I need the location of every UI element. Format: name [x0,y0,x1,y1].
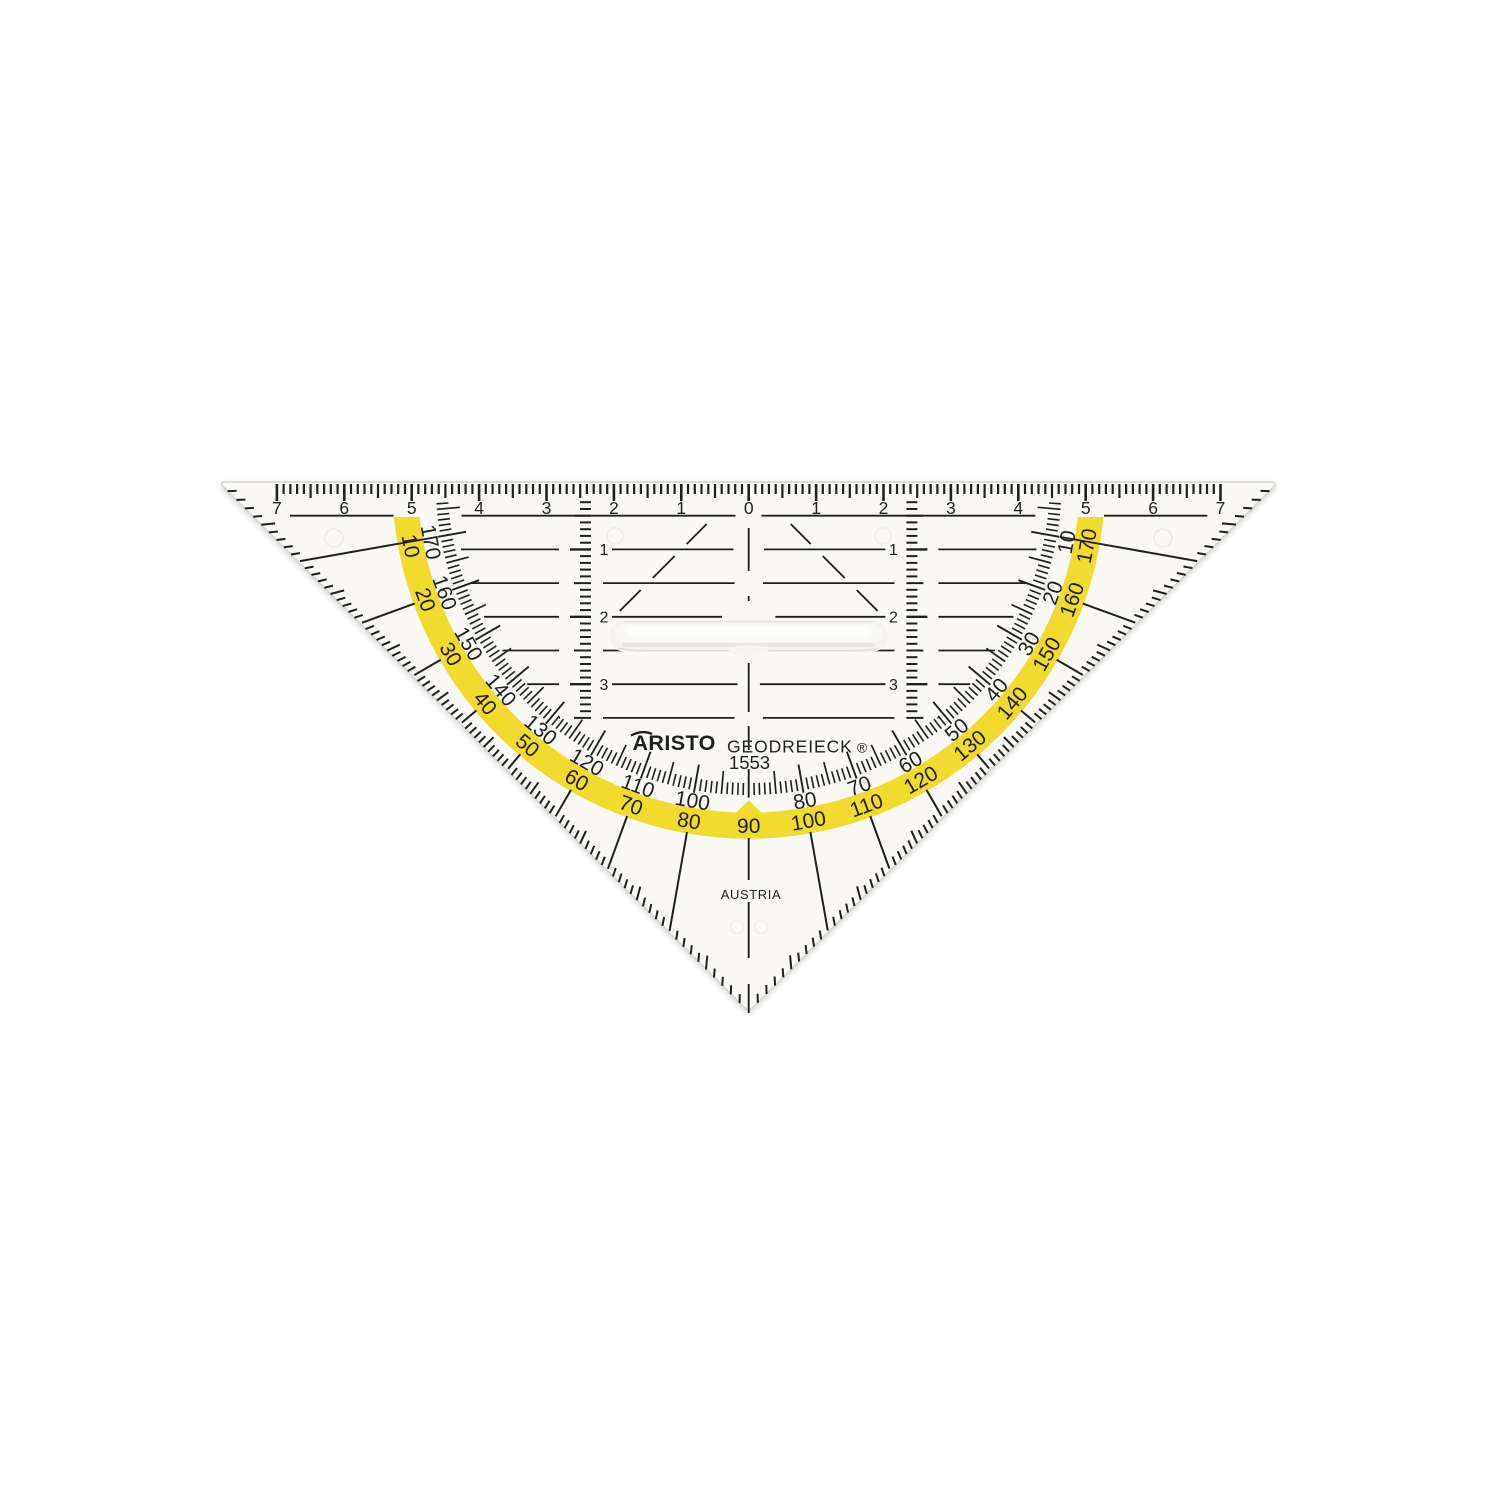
svg-text:0: 0 [744,498,754,518]
svg-text:1: 1 [889,542,898,559]
svg-text:3: 3 [889,677,898,694]
svg-text:1553: 1553 [729,752,770,773]
svg-text:5: 5 [407,498,417,518]
svg-text:2: 2 [889,610,898,627]
svg-text:®: ® [857,740,868,756]
svg-text:2: 2 [600,610,609,627]
svg-text:7: 7 [272,498,282,518]
svg-text:5: 5 [1081,498,1091,518]
svg-text:ARISTO: ARISTO [633,731,716,755]
svg-text:3: 3 [600,677,609,694]
svg-text:10: 10 [397,532,424,559]
svg-text:AUSTRIA: AUSTRIA [721,887,782,902]
svg-text:7: 7 [1216,498,1226,518]
svg-text:1: 1 [600,542,609,559]
svg-text:80: 80 [675,808,702,835]
svg-text:90: 90 [737,815,760,838]
